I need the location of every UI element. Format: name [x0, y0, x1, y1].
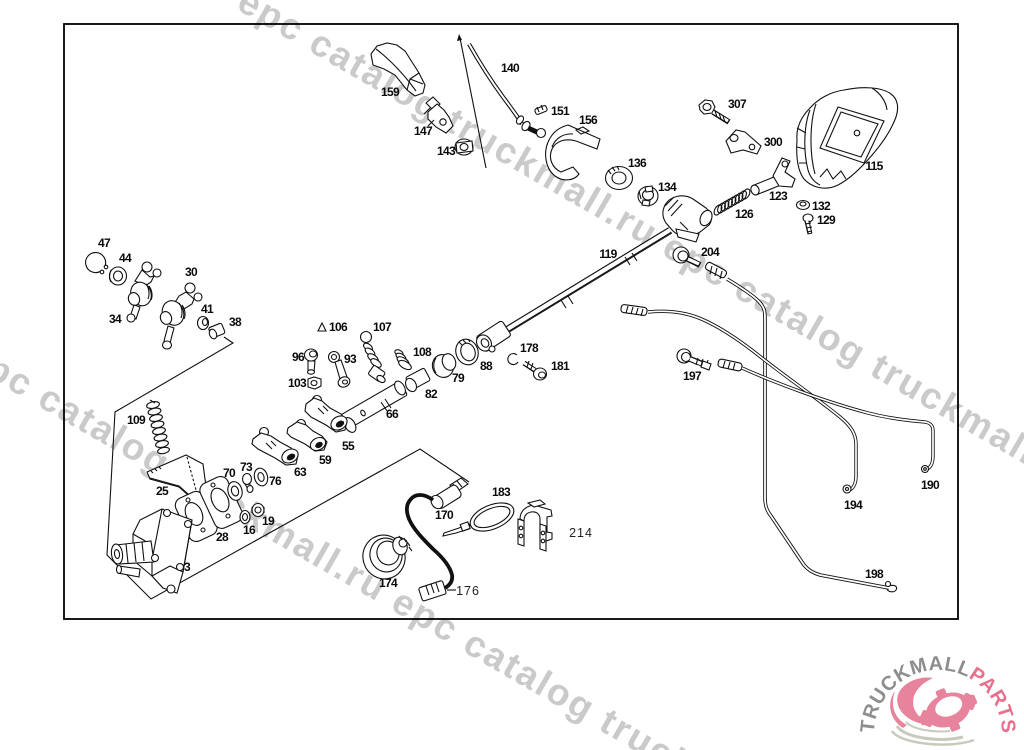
svg-text:123: 123	[769, 189, 788, 203]
svg-text:106: 106	[329, 320, 348, 334]
svg-text:307: 307	[728, 97, 747, 111]
svg-text:79: 79	[452, 371, 465, 385]
svg-text:151: 151	[551, 104, 570, 118]
svg-text:156: 156	[579, 113, 598, 127]
svg-text:129: 129	[817, 213, 836, 227]
svg-text:66: 66	[386, 407, 399, 421]
svg-text:132: 132	[812, 199, 831, 213]
svg-text:55: 55	[342, 439, 355, 453]
svg-text:47: 47	[98, 236, 111, 250]
svg-text:115: 115	[865, 159, 883, 173]
svg-text:190: 190	[921, 478, 940, 492]
svg-text:174: 174	[379, 576, 398, 590]
svg-text:41: 41	[201, 302, 214, 316]
svg-text:108: 108	[413, 345, 432, 359]
svg-text:96: 96	[292, 350, 305, 364]
svg-text:59: 59	[319, 453, 332, 467]
svg-text:30: 30	[185, 265, 198, 279]
svg-text:183: 183	[492, 485, 511, 499]
svg-text:28: 28	[216, 530, 229, 544]
svg-text:197: 197	[683, 369, 702, 383]
svg-text:103: 103	[288, 376, 307, 390]
svg-text:93: 93	[344, 352, 357, 366]
svg-text:126: 126	[735, 207, 754, 221]
svg-text:119: 119	[599, 247, 617, 261]
svg-text:73: 73	[240, 460, 253, 474]
svg-text:38: 38	[229, 315, 242, 329]
svg-text:25: 25	[156, 484, 169, 498]
svg-text:63: 63	[294, 465, 307, 479]
svg-text:3: 3	[184, 560, 191, 574]
svg-text:214: 214	[569, 526, 593, 540]
svg-text:88: 88	[480, 359, 493, 373]
svg-text:181: 181	[551, 359, 570, 373]
svg-text:19: 19	[262, 514, 275, 528]
svg-text:70: 70	[223, 466, 236, 480]
svg-text:82: 82	[425, 387, 438, 401]
svg-text:159: 159	[381, 85, 400, 99]
svg-text:176: 176	[456, 584, 480, 598]
svg-text:44: 44	[119, 251, 132, 265]
svg-text:147: 147	[414, 124, 433, 138]
svg-text:194: 194	[844, 498, 863, 512]
svg-text:140: 140	[501, 61, 520, 75]
svg-text:178: 178	[520, 341, 539, 355]
svg-text:143: 143	[437, 144, 456, 158]
svg-text:34: 34	[109, 312, 122, 326]
svg-text:300: 300	[764, 135, 783, 149]
svg-text:109: 109	[127, 413, 146, 427]
svg-text:136: 136	[628, 156, 647, 170]
svg-text:107: 107	[373, 320, 392, 334]
svg-text:76: 76	[269, 474, 282, 488]
svg-text:134: 134	[658, 180, 677, 194]
svg-text:198: 198	[865, 567, 884, 581]
svg-text:204: 204	[701, 245, 720, 259]
svg-text:16: 16	[243, 523, 256, 537]
svg-text:170: 170	[435, 508, 454, 522]
